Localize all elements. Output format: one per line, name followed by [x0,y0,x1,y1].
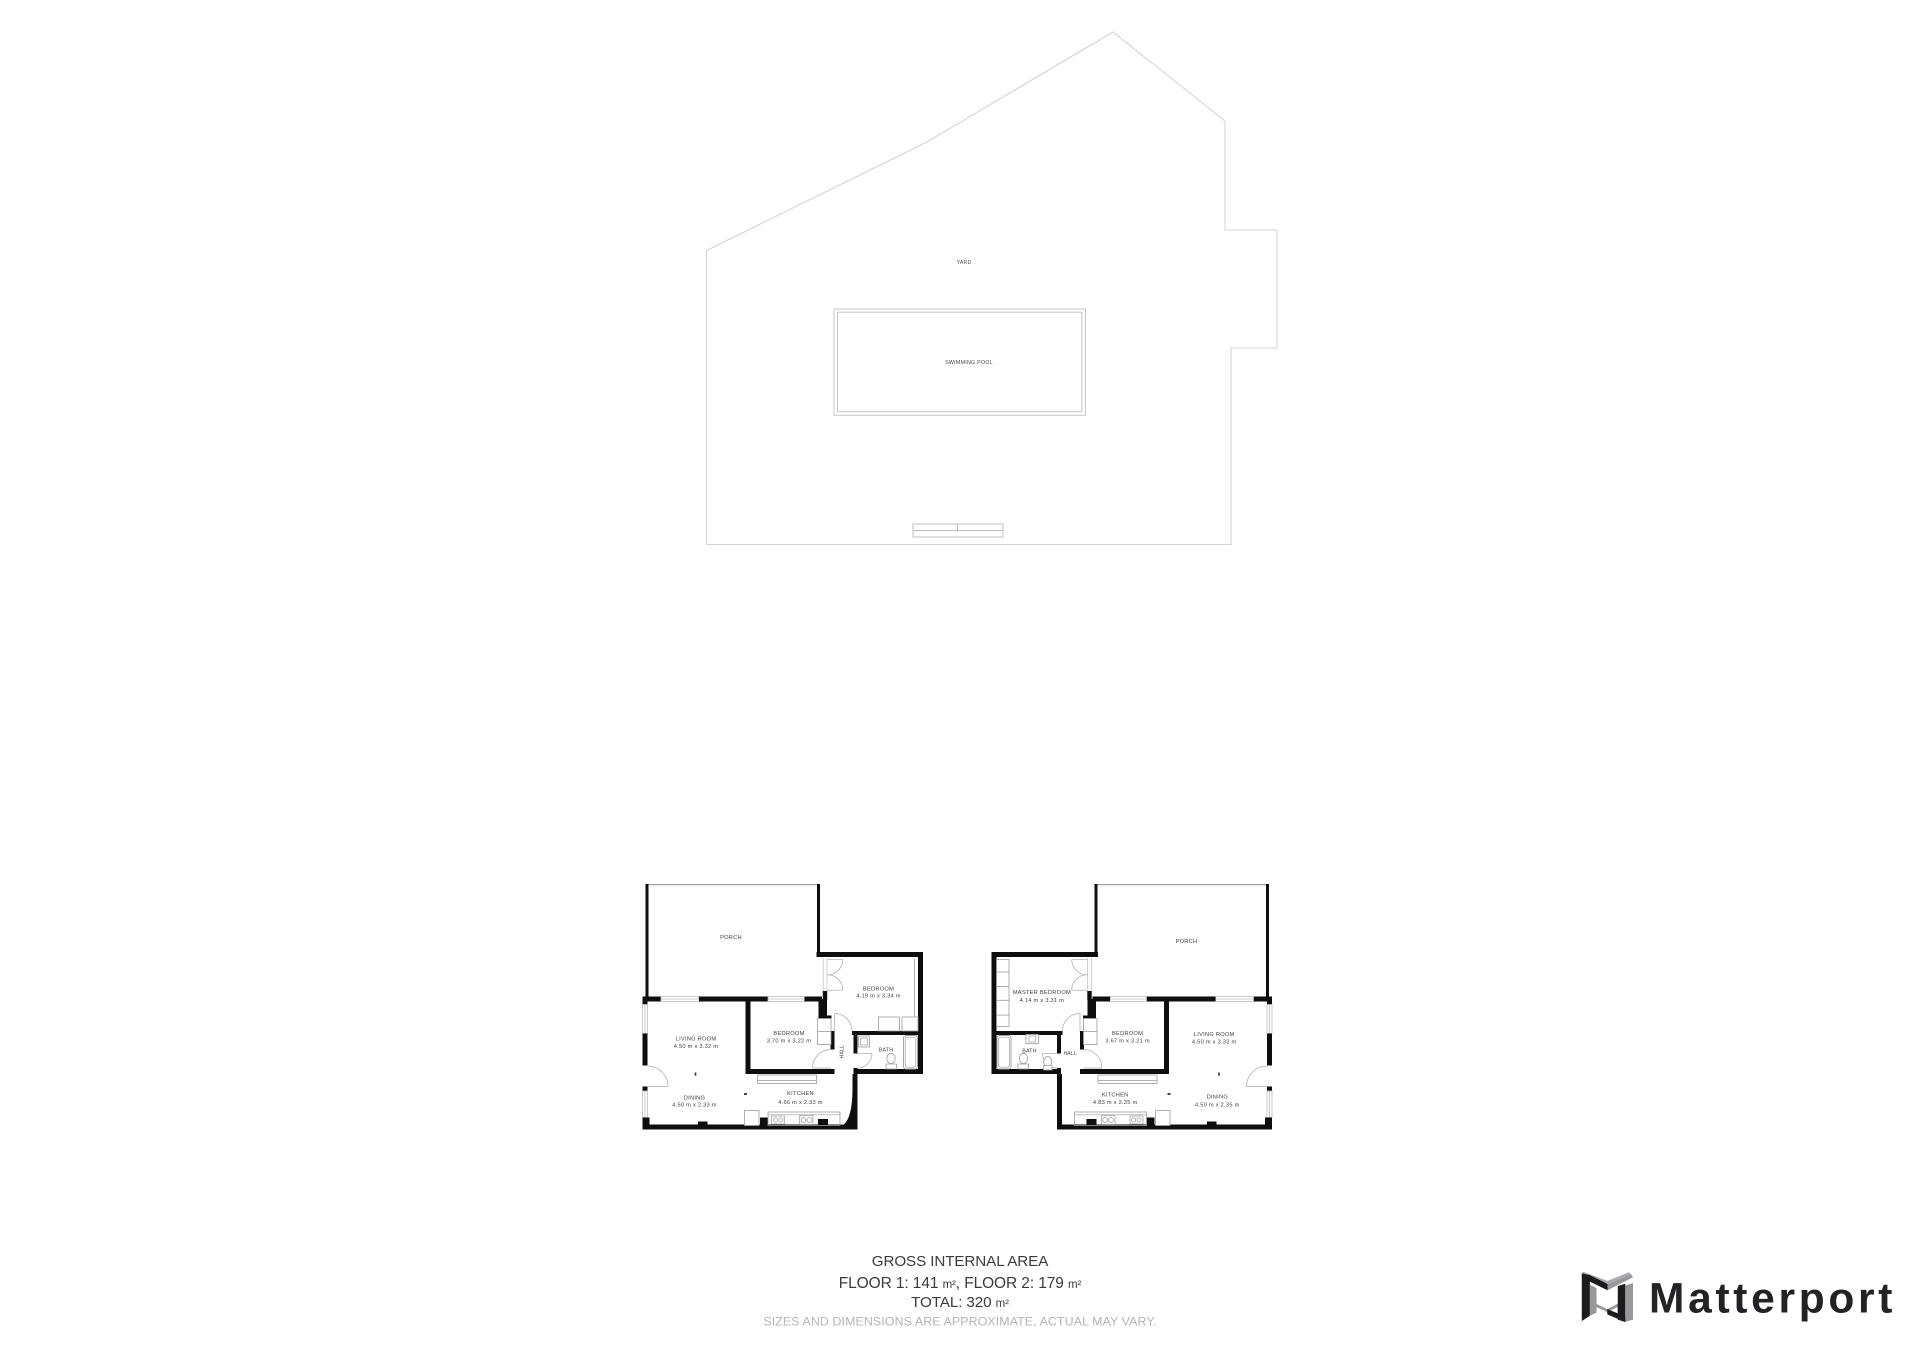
svg-text:4.66 m x 2.33 m: 4.66 m x 2.33 m [778,1100,823,1106]
svg-text:FLOOR 1: 141 m², FLOOR 2: 179: FLOOR 1: 141 m², FLOOR 2: 179 m² [839,1275,1082,1292]
svg-text:4.50 m x 2.33 m: 4.50 m x 2.33 m [672,1102,717,1108]
svg-text:4.50 m x 2.35 m: 4.50 m x 2.35 m [1195,1103,1240,1109]
svg-text:4.14 m x 3.31 m: 4.14 m x 3.31 m [1020,998,1065,1004]
svg-text:4.19 m x 3.34 m: 4.19 m x 3.34 m [856,993,901,999]
svg-text:PORCH: PORCH [1176,939,1198,945]
svg-text:YARD: YARD [957,260,972,266]
svg-text:PORCH: PORCH [720,935,742,941]
svg-text:3.67 m x 3.21 m: 3.67 m x 3.21 m [1105,1038,1150,1044]
svg-text:SIZES AND DIMENSIONS ARE APPRO: SIZES AND DIMENSIONS ARE APPROXIMATE, AC… [763,1314,1156,1328]
svg-text:DINING: DINING [684,1096,705,1102]
svg-text:LIVING ROOM: LIVING ROOM [676,1037,717,1043]
svg-text:BEDROOM: BEDROOM [1112,1031,1143,1037]
svg-text:KITCHEN: KITCHEN [1102,1093,1129,1099]
svg-text:BATH: BATH [879,1048,893,1054]
svg-text:BEDROOM: BEDROOM [863,987,894,993]
svg-text:SWIMMING POOL: SWIMMING POOL [945,360,993,366]
svg-text:LIVING ROOM: LIVING ROOM [1194,1032,1235,1038]
svg-text:4.50 m x 3.32 m: 4.50 m x 3.32 m [674,1044,719,1050]
svg-text:GROSS INTERNAL AREA: GROSS INTERNAL AREA [872,1253,1049,1270]
svg-text:HALL: HALL [840,1045,846,1059]
svg-text:4.83 m x 2.35 m: 4.83 m x 2.35 m [1093,1100,1138,1106]
svg-text:MASTER BEDROOM: MASTER BEDROOM [1013,990,1071,996]
svg-text:KITCHEN: KITCHEN [787,1091,814,1097]
svg-text:Matterport: Matterport [1649,1275,1896,1322]
svg-text:BATH: BATH [1022,1049,1036,1055]
svg-text:4.50 m x 3.32 m: 4.50 m x 3.32 m [1192,1039,1237,1045]
svg-text:3.70 m x 3.22 m: 3.70 m x 3.22 m [767,1038,812,1044]
svg-text:BEDROOM: BEDROOM [773,1031,804,1037]
svg-text:DINING: DINING [1207,1095,1228,1101]
svg-text:TOTAL: 320 m²: TOTAL: 320 m² [911,1294,1009,1311]
svg-text:HALL: HALL [1063,1051,1077,1057]
